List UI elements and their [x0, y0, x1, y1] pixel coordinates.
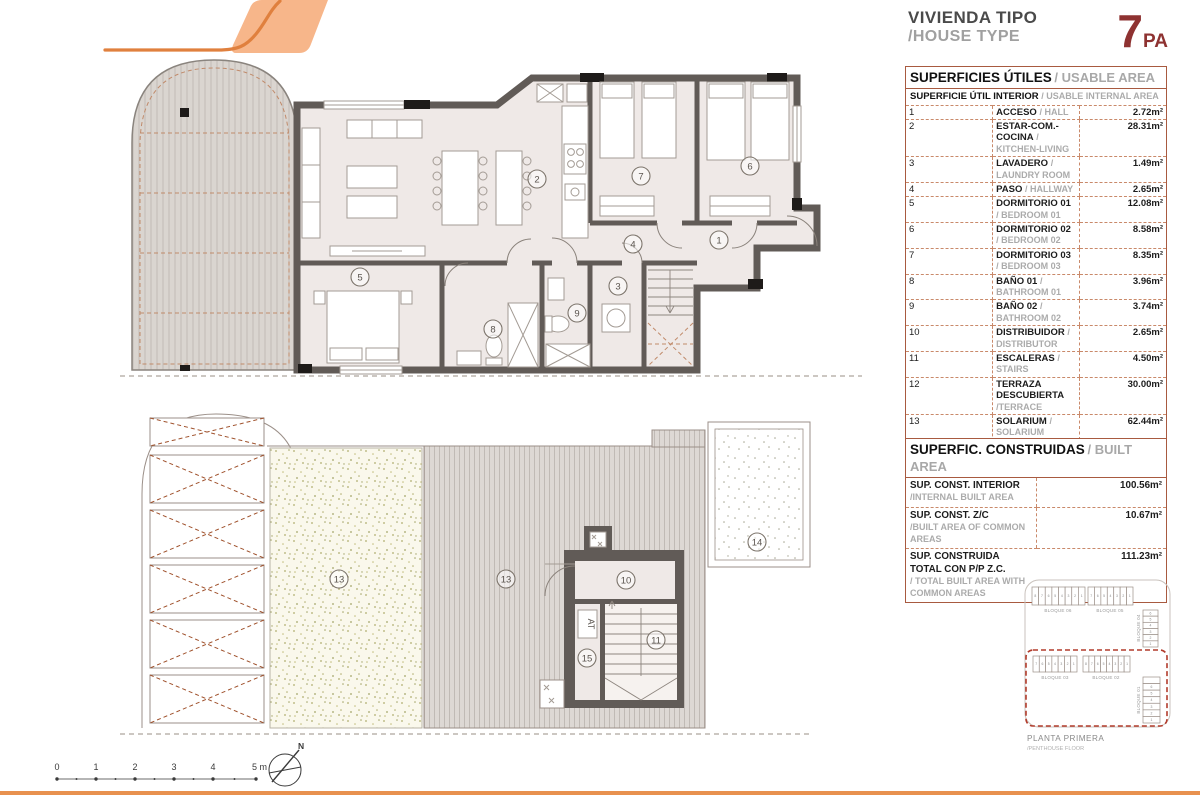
type-suffix: PA — [1143, 31, 1168, 52]
table-row: SUP. CONST. INTERIOR /INTERNAL BUILT ARE… — [906, 478, 1166, 507]
site-unit-number: 5 — [1151, 692, 1153, 696]
room-label-6: 6 — [747, 162, 752, 173]
site-unit-number: 3 — [1114, 662, 1116, 666]
room-label-1: 1 — [716, 236, 721, 247]
site-unit-number: 3 — [1067, 594, 1069, 598]
site-block-label: BLOQUE 03 — [1041, 675, 1069, 680]
site-unit-number: 8 — [1085, 662, 1087, 666]
site-unit-number: 3 — [1151, 705, 1153, 709]
site-unit-number: 1 — [1126, 662, 1128, 666]
svg-text:4: 4 — [210, 762, 215, 772]
usable-subtitle-en: / USABLE INTERNAL AREA — [1041, 91, 1159, 101]
room-label-15: 15 — [582, 654, 593, 665]
table-row: 8BAÑO 01 / BATHROOM 013.96m² — [906, 274, 1166, 300]
room-label-13b: 13 — [501, 575, 512, 586]
site-unit-number: 6 — [1150, 611, 1152, 615]
table-row: 3LAVADERO / LAUNDRY ROOM1.49m² — [906, 157, 1166, 183]
floor-plan-upper: 2 5 7 6 1 4 3 9 8 — [112, 48, 872, 393]
site-unit-number: 2 — [1122, 594, 1124, 598]
at-label: AT — [586, 619, 596, 630]
site-unit-number: 1 — [1073, 662, 1075, 666]
room-label-13a: 13 — [334, 575, 345, 586]
svg-text:2: 2 — [132, 762, 137, 772]
svg-text:0: 0 — [54, 762, 59, 772]
room-label-2: 2 — [534, 175, 539, 186]
site-unit-number: 4 — [1151, 698, 1153, 702]
site-unit-number: 7 — [1091, 662, 1093, 666]
plan-sheet: 2 5 7 6 1 4 3 9 8 — [0, 0, 1200, 800]
site-unit-number: 8 — [1034, 594, 1036, 598]
site-block-label: BLOQUE 02 — [1092, 675, 1120, 680]
site-unit-number: 2 — [1151, 711, 1153, 715]
room-label-3: 3 — [615, 282, 620, 293]
site-blocks: 87654321BLOQUE 067654321BLOQUE 05654321B… — [1032, 587, 1160, 723]
site-unit-number: 1 — [1129, 594, 1131, 598]
site-block-label: BLOQUE 06 — [1044, 608, 1072, 613]
room-label-4: 4 — [630, 240, 635, 251]
svg-text:1: 1 — [93, 762, 98, 772]
stairs-lower — [605, 601, 677, 700]
north-arrow: N — [255, 740, 317, 795]
site-key-plan: 87654321BLOQUE 067654321BLOQUE 05654321B… — [1015, 576, 1190, 758]
type-number: 7 — [1117, 5, 1143, 57]
site-unit-number: 6 — [1097, 594, 1099, 598]
site-unit-number: 5 — [1048, 662, 1050, 666]
room-label-14: 14 — [752, 538, 763, 549]
floor-plan-lower: AT 13 13 10 11 15 14 — [112, 394, 827, 742]
site-unit-number: 4 — [1110, 594, 1112, 598]
site-unit-number: 5 — [1103, 594, 1105, 598]
site-unit-number: 5 — [1103, 662, 1105, 666]
solarium-speckle — [270, 448, 422, 728]
usable-subtitle-es: SUPERFICIE ÚTIL INTERIOR — [910, 91, 1039, 102]
site-unit-number: 2 — [1120, 662, 1122, 666]
usable-title-es: SUPERFICIES ÚTILES — [910, 70, 1052, 85]
site-block-label: BLOQUE 01 — [1136, 686, 1141, 714]
table-row: 11ESCALERAS / STAIRS4.50m² — [906, 352, 1166, 378]
table-row: 7DORMITORIO 03 / BEDROOM 038.35m² — [906, 248, 1166, 274]
built-title-es: SUPERFIC. CONSTRUIDAS — [910, 442, 1085, 457]
site-unit-number: 3 — [1150, 630, 1152, 634]
table-row: 9BAÑO 02 / BATHROOM 023.74m² — [906, 300, 1166, 326]
site-unit-number: 5 — [1150, 617, 1152, 621]
site-unit-number: 7 — [1151, 678, 1153, 682]
table-row: 13SOLARIUM / SOLARIUM62.44m² — [906, 414, 1166, 440]
site-unit-number: 4 — [1054, 662, 1056, 666]
north-label: N — [298, 741, 304, 751]
table-row: 1ACCESO / HALL2.72m² — [906, 105, 1166, 119]
usable-title-en: / USABLE AREA — [1054, 70, 1155, 85]
room-label-7: 7 — [638, 172, 643, 183]
room-label-11: 11 — [651, 636, 661, 647]
site-unit-number: 1 — [1150, 642, 1152, 646]
room-label-8: 8 — [490, 325, 495, 336]
room-label-10: 10 — [621, 576, 632, 587]
site-unit-number: 7 — [1041, 594, 1043, 598]
site-unit-number: 5 — [1054, 594, 1056, 598]
house-type-badge: 7PA — [1117, 8, 1168, 54]
table-row: 10DISTRIBUIDOR / DISTRIBUTOR2.65m² — [906, 326, 1166, 352]
site-unit-number: 2 — [1150, 636, 1152, 640]
floor-label-en: /PENTHOUSE FLOOR — [1027, 746, 1084, 752]
room-label-5: 5 — [357, 273, 362, 284]
table-row: 6DORMITORIO 02 / BEDROOM 028.58m² — [906, 223, 1166, 249]
site-unit-number: 6 — [1048, 594, 1050, 598]
title-block: VIVIENDA TIPO /HOUSE TYPE 7PA — [908, 8, 1170, 46]
site-unit-number: 4 — [1061, 594, 1063, 598]
site-unit-number: 1 — [1081, 594, 1083, 598]
svg-text:3: 3 — [171, 762, 176, 772]
bottom-rule — [0, 791, 1200, 795]
table-row: 4PASO / HALLWAY2.65m² — [906, 182, 1166, 196]
site-unit-number: 7 — [1035, 662, 1037, 666]
site-unit-number: 6 — [1097, 662, 1099, 666]
site-block-label: BLOQUE 04 — [1136, 614, 1141, 642]
table-row: 5DORMITORIO 01 / BEDROOM 0112.08m² — [906, 197, 1166, 223]
site-unit-number: 4 — [1108, 662, 1110, 666]
site-unit-number: 2 — [1074, 594, 1076, 598]
site-unit-number: 2 — [1067, 662, 1069, 666]
room-label-9: 9 — [574, 309, 579, 320]
table-row: 2ESTAR-COM.-COCINA / KITCHEN-LIVING28.31… — [906, 119, 1166, 156]
site-unit-number: 3 — [1060, 662, 1062, 666]
site-unit-number: 3 — [1116, 594, 1118, 598]
floor-label-es: PLANTA PRIMERA — [1027, 734, 1104, 743]
hatch-terrace — [132, 60, 297, 371]
site-block-label: BLOQUE 05 — [1096, 608, 1124, 613]
site-unit-number: 6 — [1151, 685, 1153, 689]
site-unit-number: 6 — [1041, 662, 1043, 666]
site-unit-number: 4 — [1150, 624, 1152, 628]
table-row: SUP. CONST. Z/C/BUILT AREA OF COMMON ARE… — [906, 507, 1166, 549]
site-unit-number: 1 — [1151, 718, 1153, 722]
site-unit-number: 7 — [1090, 594, 1092, 598]
table-row: 12TERRAZA DESCUBIERTA /TERRACE30.00m² — [906, 377, 1166, 414]
